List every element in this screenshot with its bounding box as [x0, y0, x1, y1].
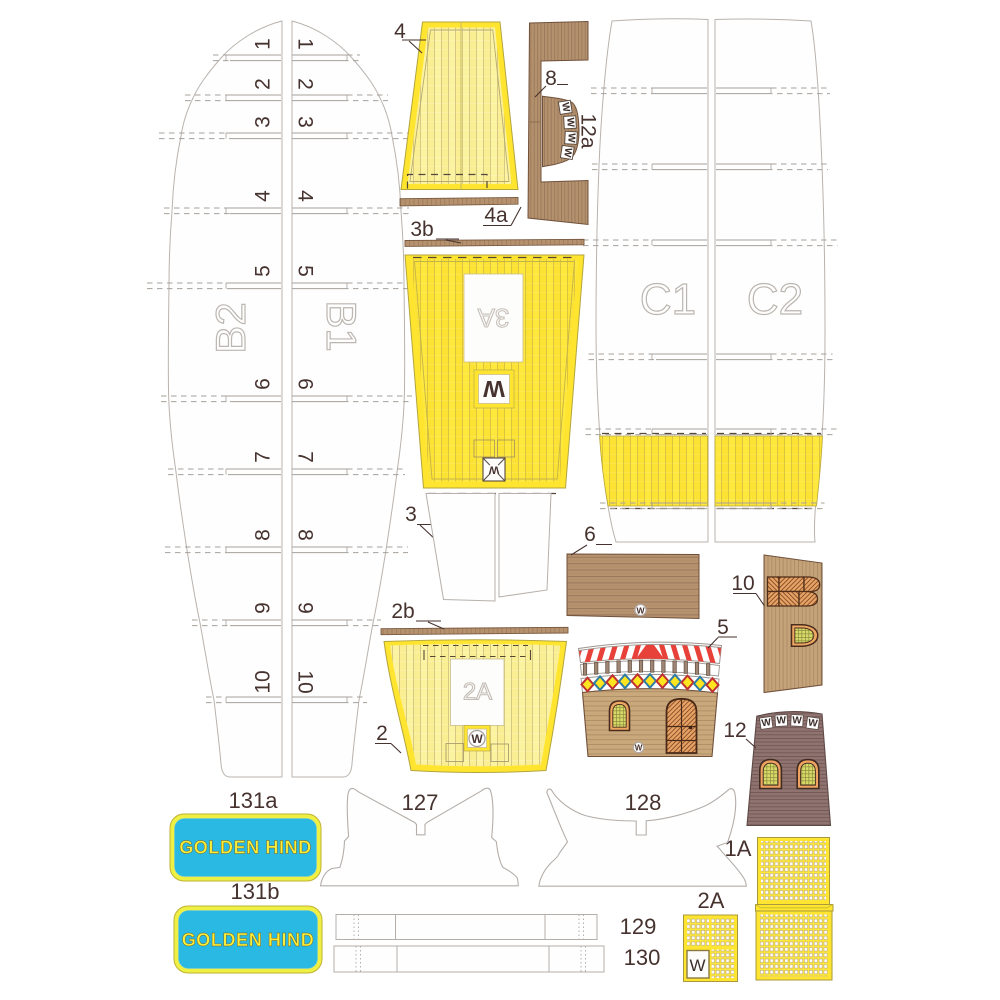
- svg-text:3: 3: [405, 503, 417, 526]
- svg-text:131b: 131b: [231, 879, 280, 904]
- svg-text:9: 9: [252, 602, 275, 614]
- svg-text:W: W: [635, 744, 643, 753]
- svg-text:C1: C1: [640, 275, 696, 324]
- svg-text:6: 6: [294, 378, 317, 390]
- svg-text:128: 128: [625, 790, 662, 815]
- svg-text:129: 129: [620, 914, 657, 939]
- svg-text:9: 9: [294, 602, 317, 614]
- svg-text:2: 2: [252, 78, 275, 90]
- svg-text:W: W: [792, 715, 803, 727]
- svg-text:2: 2: [294, 78, 317, 90]
- svg-text:4a: 4a: [484, 204, 508, 227]
- svg-text:W: W: [564, 117, 576, 128]
- svg-text:127: 127: [402, 790, 439, 815]
- svg-text:C2: C2: [747, 275, 803, 324]
- svg-text:8: 8: [545, 67, 557, 90]
- svg-text:6: 6: [584, 523, 596, 546]
- svg-text:5: 5: [294, 265, 317, 277]
- svg-text:10: 10: [252, 670, 275, 693]
- svg-text:GOLDEN HIND: GOLDEN HIND: [179, 838, 312, 858]
- svg-text:3: 3: [252, 116, 275, 128]
- svg-text:7: 7: [252, 451, 275, 463]
- svg-text:B2: B2: [207, 302, 254, 353]
- svg-text:4: 4: [294, 190, 317, 202]
- svg-text:2A: 2A: [463, 679, 492, 706]
- svg-text:1: 1: [252, 38, 275, 50]
- svg-text:W: W: [471, 732, 483, 746]
- svg-text:1: 1: [294, 38, 317, 50]
- svg-text:6: 6: [252, 378, 275, 390]
- svg-text:2A: 2A: [698, 888, 725, 913]
- svg-text:12a: 12a: [577, 113, 600, 148]
- svg-text:2b: 2b: [391, 600, 414, 623]
- svg-text:5: 5: [252, 265, 275, 277]
- svg-text:GOLDEN HIND: GOLDEN HIND: [182, 930, 315, 950]
- svg-text:12: 12: [723, 719, 746, 742]
- svg-text:8: 8: [294, 529, 317, 541]
- svg-text:7: 7: [294, 451, 317, 463]
- svg-text:W: W: [689, 956, 705, 975]
- svg-text:3: 3: [294, 116, 317, 128]
- svg-text:131a: 131a: [229, 788, 279, 813]
- svg-text:4: 4: [252, 190, 275, 202]
- svg-text:5: 5: [717, 616, 729, 639]
- svg-text:2: 2: [376, 722, 388, 745]
- svg-text:3A: 3A: [477, 303, 509, 333]
- svg-text:W: W: [776, 715, 787, 727]
- svg-text:8: 8: [252, 529, 275, 541]
- svg-text:W: W: [565, 133, 577, 144]
- svg-text:10: 10: [731, 572, 754, 595]
- svg-text:130: 130: [624, 945, 661, 970]
- svg-text:W: W: [483, 376, 505, 402]
- svg-text:W: W: [636, 606, 645, 616]
- svg-text:3b: 3b: [410, 218, 433, 241]
- svg-text:B1: B1: [318, 300, 365, 351]
- svg-text:10: 10: [294, 670, 317, 693]
- svg-text:W: W: [488, 464, 499, 476]
